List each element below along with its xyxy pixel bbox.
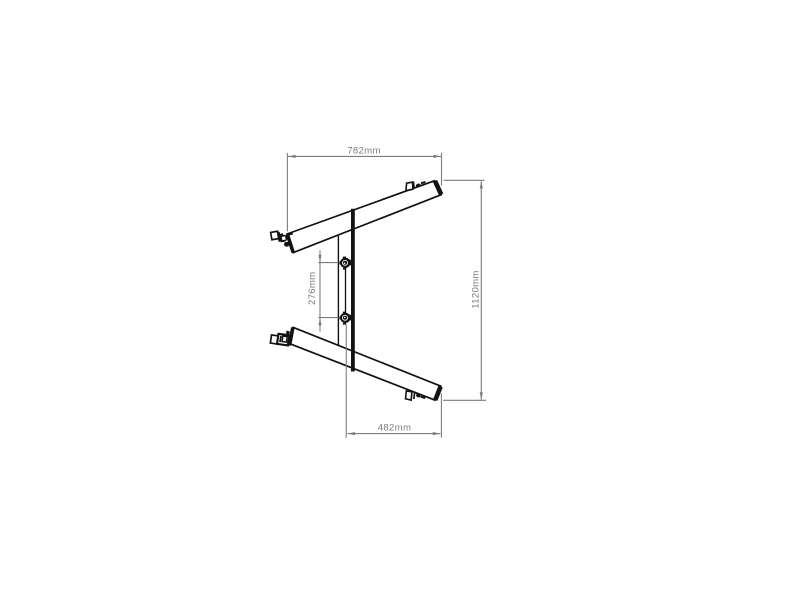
svg-text:482mm: 482mm <box>378 423 412 434</box>
svg-text:276mm: 276mm <box>307 272 318 306</box>
svg-text:782mm: 782mm <box>347 146 381 157</box>
svg-text:1120mm: 1120mm <box>470 270 481 308</box>
